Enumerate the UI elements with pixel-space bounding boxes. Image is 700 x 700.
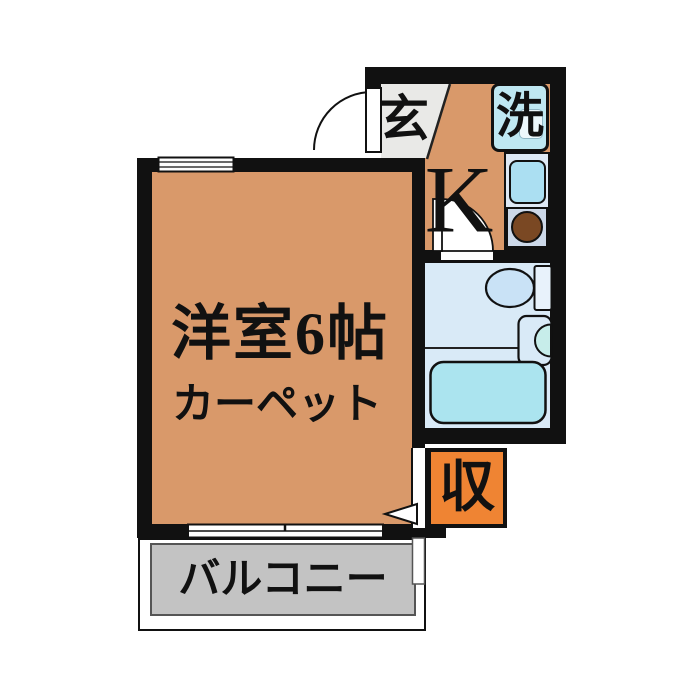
wall-room-bottom bbox=[137, 524, 446, 538]
entrance-door-icon bbox=[314, 88, 381, 152]
wall-bathroom-bottom bbox=[412, 428, 566, 444]
storage-label: 収 bbox=[439, 460, 495, 516]
balcony-label: バルコニー bbox=[178, 559, 387, 601]
main-room-floor-label: カーペット bbox=[172, 384, 382, 426]
bathroom-area bbox=[425, 263, 550, 428]
floor-plan: 洋室6帖 カーペット K 玄 洗 収 バルコニー bbox=[0, 0, 700, 700]
laundry-label: 洗 bbox=[496, 93, 544, 141]
closet-door-icon bbox=[411, 448, 427, 528]
wall-right bbox=[550, 67, 566, 444]
main-room-label: 洋室6帖 bbox=[171, 304, 389, 364]
wall-room-left bbox=[137, 158, 152, 538]
wall-top bbox=[365, 67, 566, 84]
kitchen-sink-icon bbox=[509, 160, 546, 204]
entrance-label: 玄 bbox=[379, 94, 429, 144]
stove-burner-icon bbox=[511, 211, 543, 243]
wall-room-top bbox=[137, 158, 425, 172]
kitchen-label: K bbox=[425, 153, 494, 248]
